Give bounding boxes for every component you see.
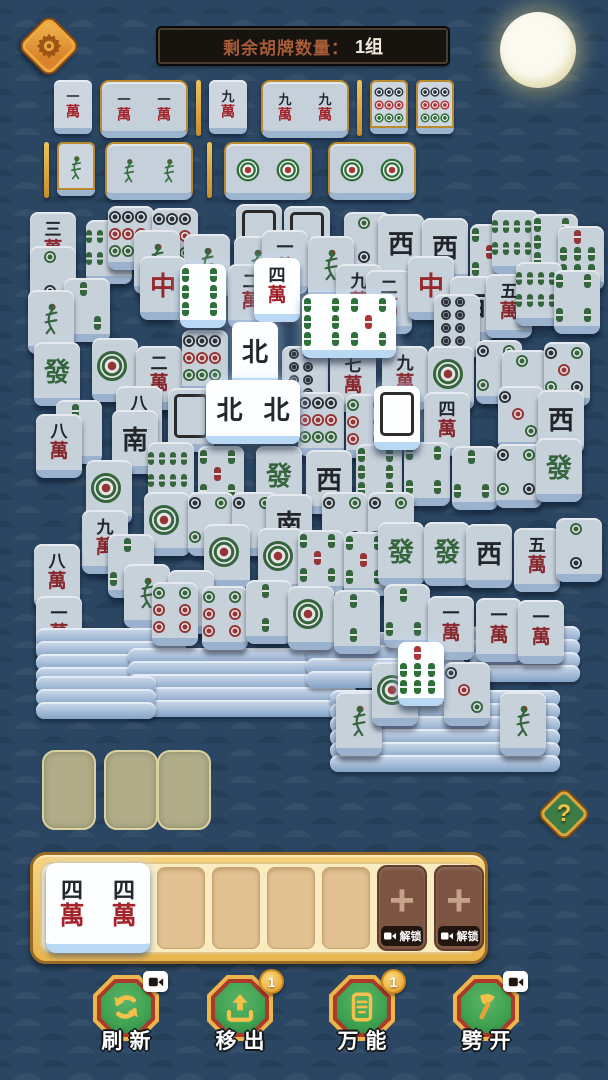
- tile-face-xi: 西: [538, 392, 584, 444]
- tray-slots: 四萬四萬+解锁+解锁: [40, 862, 478, 954]
- split-button[interactable]: 劈开: [438, 975, 534, 1065]
- tile-face-xi: 西: [466, 526, 512, 578]
- tile-face-blank: [374, 388, 420, 440]
- move-out-button[interactable]: 1 移出: [192, 975, 288, 1065]
- tile-face-d2: [556, 520, 602, 572]
- tile-face-d3: [444, 664, 490, 716]
- tile-face-b6: [302, 296, 349, 348]
- tile-face-fa: 發: [424, 524, 470, 576]
- refresh-label: 刷新: [78, 1025, 174, 1055]
- wildcard-count-badge: 1: [381, 969, 406, 994]
- bamboo-bird-icon: [346, 702, 372, 738]
- tile-face-b4: [404, 444, 450, 496]
- mahjong-tile-w8[interactable]: 八萬: [36, 414, 82, 478]
- mahjong-tile-fa[interactable]: 發: [424, 522, 470, 586]
- reserve-slot-2: [104, 750, 158, 830]
- mahjong-tile-b3[interactable]: [452, 446, 498, 510]
- tile-face-fa: 發: [536, 440, 582, 492]
- tile-face-b6: [356, 446, 402, 498]
- move-out-label: 移出: [192, 1025, 288, 1055]
- mahjong-tile-xi[interactable]: 西: [466, 524, 512, 588]
- move-out-icon: [223, 990, 257, 1024]
- tile-face-d9: [298, 394, 344, 446]
- mahjong-tile-bei-bei[interactable]: 北北: [206, 380, 300, 444]
- tile-stack: [36, 676, 156, 721]
- ad-video-icon: [143, 971, 168, 992]
- bamboo-bird-icon: [38, 300, 64, 336]
- empty-tray-slot: [212, 867, 260, 949]
- mahjong-tile-fa[interactable]: 發: [378, 522, 424, 586]
- unlock-label: 解锁: [457, 928, 479, 944]
- tile-face-w4: 四萬: [46, 879, 98, 931]
- tile-face-d1: [92, 340, 138, 392]
- tile-face-w5: 五萬: [514, 530, 560, 582]
- ad-video-icon: [503, 971, 528, 992]
- tile-tray: 四萬四萬+解锁+解锁: [30, 852, 488, 964]
- wildcard-tile-icon: [345, 990, 379, 1024]
- refresh-icon: [109, 990, 143, 1024]
- unlock-badge: 解锁: [438, 926, 480, 946]
- mahjong-tile-w4[interactable]: 四萬: [254, 258, 300, 322]
- mahjong-tile-b6-b5[interactable]: [302, 294, 396, 358]
- mahjong-tile-d6[interactable]: [202, 586, 248, 650]
- mahjong-tile-b2[interactable]: [334, 590, 380, 654]
- tile-face-fa: 發: [34, 344, 80, 396]
- mahjong-tile-w1[interactable]: 一萬: [476, 598, 522, 662]
- mahjong-tile-b3[interactable]: [384, 584, 430, 648]
- bamboo-bird-icon: [510, 702, 536, 738]
- question-mark-icon: ?: [542, 792, 586, 836]
- mahjong-tile-b4[interactable]: [554, 270, 600, 334]
- game-screen: 剩余胡牌数量： 1组 一萬一萬一萬九萬九萬九萬 三萬西西一萬中二萬九萬二萬中西五…: [0, 0, 608, 1080]
- tile-face-b5: [298, 532, 344, 584]
- tile-face-b2: [334, 592, 380, 644]
- tile-face-b4: [554, 272, 600, 324]
- mahjong-tile-fa[interactable]: 發: [34, 342, 80, 406]
- reserve-slot-3: [157, 750, 211, 830]
- mahjong-tile-d1[interactable]: [288, 586, 334, 650]
- tile-face-w1: 一萬: [518, 602, 564, 654]
- tile-face-b3: [384, 586, 430, 638]
- mahjong-tile-w5[interactable]: 五萬: [514, 528, 560, 592]
- tile-face-d8: [434, 296, 480, 348]
- tile-face-b5: [349, 296, 396, 348]
- tile-face-d1: [86, 462, 132, 514]
- unlock-label: 解锁: [400, 928, 422, 944]
- help-button[interactable]: ?: [542, 792, 586, 836]
- locked-tray-slot[interactable]: +解锁: [377, 865, 427, 951]
- mahjong-tile-b2[interactable]: [246, 580, 292, 644]
- tile-face-b6: [180, 266, 226, 318]
- refresh-button[interactable]: 刷新: [78, 975, 174, 1065]
- tile-face-w4: 四萬: [98, 879, 150, 931]
- tile-face-d9: [182, 332, 228, 384]
- tile-face-w8: 八萬: [34, 546, 80, 598]
- wildcard-button[interactable]: 1 万能: [314, 975, 410, 1065]
- locked-tray-slot[interactable]: +解锁: [434, 865, 484, 951]
- tile-face-fa: 發: [378, 524, 424, 576]
- mahjong-tile-b5[interactable]: [298, 530, 344, 594]
- mahjong-tile-w1[interactable]: 一萬: [518, 600, 564, 664]
- mahjong-tile-fa[interactable]: 發: [536, 438, 582, 502]
- tile-face-w8: 八萬: [36, 416, 82, 468]
- tile-face-w4: 四萬: [424, 394, 470, 446]
- tray-tile-pair[interactable]: 四萬四萬: [46, 863, 150, 953]
- tile-face-w1: 一萬: [476, 600, 522, 652]
- tile-face-b3: [452, 448, 498, 500]
- tile-face-w4: 四萬: [254, 260, 300, 312]
- tile-face-bird: [500, 694, 546, 746]
- tile-face-d6: [152, 584, 198, 636]
- wildcard-label: 万能: [314, 1025, 410, 1055]
- tile-face-bei: 北: [253, 382, 300, 434]
- ad-video-icon: [383, 931, 397, 941]
- split-label: 劈开: [438, 1025, 534, 1055]
- tile-face-d5: [544, 344, 590, 396]
- mahjong-tile-d9[interactable]: [298, 392, 344, 456]
- empty-tray-slot: [322, 867, 370, 949]
- tile-face-bei: 北: [206, 382, 253, 434]
- mahjong-tile-d6[interactable]: [152, 582, 198, 646]
- mahjong-tile-bird[interactable]: [500, 692, 546, 756]
- tile-face-bird: [28, 292, 74, 344]
- empty-tray-slot: [157, 867, 205, 949]
- tile-face-b2: [246, 582, 292, 634]
- mahjong-tile-d2[interactable]: [556, 518, 602, 582]
- move-out-count-badge: 1: [259, 969, 284, 994]
- empty-tray-slot: [267, 867, 315, 949]
- axe-icon: [469, 990, 503, 1024]
- ad-video-icon: [440, 931, 454, 941]
- mahjong-tile-b7[interactable]: [398, 642, 444, 706]
- mahjong-tile-b6[interactable]: [180, 264, 226, 328]
- tile-face-d1: [288, 588, 334, 640]
- tile-face-d1: [204, 526, 250, 578]
- tile-face-d6: [202, 588, 248, 640]
- mahjong-tile-blank[interactable]: [374, 386, 420, 450]
- reserve-slot-1: [42, 750, 96, 830]
- mahjong-tile-bei[interactable]: 北: [232, 322, 278, 386]
- tile-face-b7: [398, 644, 444, 696]
- tile-face-b8: [148, 444, 194, 496]
- mahjong-tile-d3[interactable]: [444, 662, 490, 726]
- unlock-badge: 解锁: [381, 926, 423, 946]
- tile-face-bei: 北: [232, 324, 278, 376]
